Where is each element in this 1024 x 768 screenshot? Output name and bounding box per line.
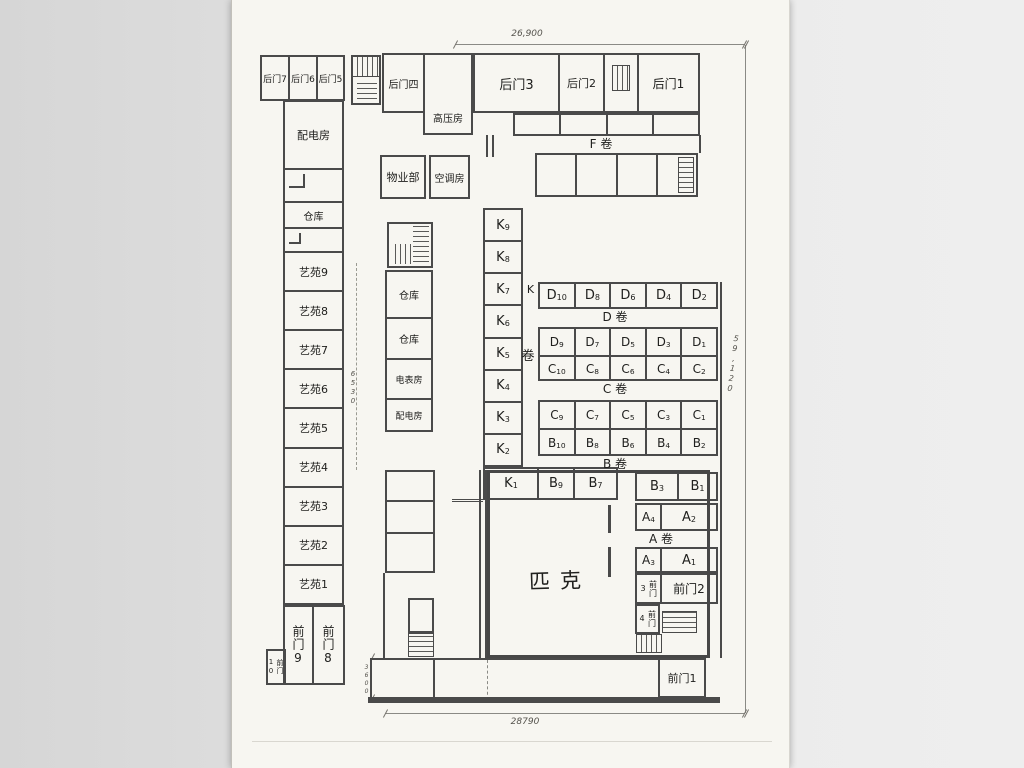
room-frontdoor-9: 前门9 (285, 607, 314, 683)
room-backdoor-4: 后门四 (384, 55, 425, 111)
unit-cell-b10: B10 (540, 430, 576, 456)
room-frontdoor-1: 前门1 (658, 658, 706, 698)
room-peidianfang-2: 配电房 (387, 400, 431, 430)
dimension-top-value: 26,900 (492, 27, 562, 41)
unit-cell-d9: D9 (540, 329, 576, 355)
room-backdoor-2: 后门2 (560, 55, 605, 111)
unit-cell-k7: K7 (485, 274, 521, 306)
unit-cell-c8: C8 (576, 357, 612, 381)
band-dashed-divider (487, 660, 488, 700)
band-stair-cell (605, 55, 639, 111)
service-shaft-block (385, 470, 435, 573)
room-yiyuan-2: 艺苑2 (285, 527, 342, 566)
room-peidianfang: 配电房 (285, 102, 342, 170)
dimension-mid-left-value: 6530 (347, 368, 359, 408)
stairs-icon (408, 633, 434, 657)
unit-cell-d5: D5 (611, 329, 647, 355)
room-kongtiaofang: 空调房 (429, 155, 470, 199)
room-backdoor-1: 后门1 (639, 55, 698, 111)
left-notch-cell (285, 229, 342, 253)
wall-hall-left (479, 470, 487, 658)
unit-cell-k8: K8 (485, 242, 521, 274)
room-backdoor-3: 后门3 (475, 55, 560, 111)
unit-cell-d4: D4 (647, 284, 683, 307)
wall-right-connector (699, 135, 702, 153)
hall-partition-wall (608, 505, 611, 533)
unit-cell-d10: D10 (540, 284, 576, 307)
unit-cell-c5: C5 (611, 402, 647, 428)
dimension-line-top (455, 44, 745, 45)
unit-cell-k6: K6 (485, 306, 521, 338)
room-frontdoor-8: 前门8 (314, 607, 343, 683)
room-gaoyafang: 高压房 (423, 53, 473, 135)
room-yiyuan-3: 艺苑3 (285, 488, 342, 527)
room-cangku-a: 仓库 (387, 272, 431, 319)
frontdoor-block-98: 前门9 前门8 (283, 605, 345, 685)
k-section-juan: 卷 (519, 345, 537, 363)
unit-cell-d1: D1 (682, 329, 716, 355)
room-yiyuan-4: 艺苑4 (285, 449, 342, 488)
unit-cell-k9: K9 (485, 210, 521, 242)
unit-cell-c2: C2 (682, 357, 716, 381)
unit-cell-c9: C9 (540, 402, 576, 428)
cb-double-row: C9 C7 C5 C3 C1 B10 B8 B6 B4 B2 (538, 400, 718, 456)
band-subrow (513, 113, 700, 136)
wall-left-lower (383, 573, 385, 658)
unit-cell-b6: B6 (611, 430, 647, 456)
k-section-letter: K (524, 282, 537, 296)
unit-cell-k2: K2 (485, 435, 521, 465)
f-row (535, 153, 698, 197)
room-wuyebu: 物业部 (380, 155, 426, 199)
wall-right-outer (720, 282, 722, 658)
unit-cell-d3: D3 (647, 329, 683, 355)
stairs-icon (387, 222, 433, 268)
left-wing-column: 配电房 仓库 艺苑9 艺苑8 艺苑7 艺苑6 艺苑5 艺苑4 艺苑3 艺苑2 艺… (283, 100, 344, 605)
backdoor-block-765: 后门7 后门6 后门5 (260, 55, 345, 101)
dc-double-row: D9 D7 D5 D3 D1 C10 C8 C6 C4 C2 (538, 327, 718, 381)
left-corridor-cell (285, 170, 342, 203)
mid-wing-column: 仓库 仓库 电表房 配电房 (385, 270, 433, 432)
dimension-line-right (745, 45, 746, 713)
room-yiyuan-7: 艺苑7 (285, 331, 342, 370)
unit-cell-d6: D6 (611, 284, 647, 307)
d-even-row: D10 D8 D6 D4 D2 (538, 282, 718, 309)
unit-cell-c1: C1 (682, 402, 716, 428)
bottom-band (370, 658, 706, 698)
hall-pike: 匹克 (487, 470, 710, 658)
unit-cell-d7: D7 (576, 329, 612, 355)
unit-cell-k3: K3 (485, 403, 521, 435)
room-dianbiaofang: 电表房 (387, 360, 431, 400)
unit-cell-k5: K5 (485, 339, 521, 371)
stairs-icon (678, 157, 694, 193)
stairs-icon (351, 55, 381, 105)
section-label-c: C 卷 (593, 380, 637, 397)
section-label-f: F 卷 (575, 135, 627, 152)
wall-stub (486, 135, 494, 157)
dimension-bottom-value: 28790 (490, 715, 560, 728)
room-cangku-b: 仓库 (387, 319, 431, 360)
unit-cell-b8: B8 (576, 430, 612, 456)
room-yiyuan-1: 艺苑1 (285, 566, 342, 603)
unit-cell-d8: D8 (576, 284, 612, 307)
unit-cell-b2: B2 (682, 430, 716, 456)
hall-pike-label: 匹克 (520, 564, 601, 597)
dimension-line-mid-left (356, 263, 357, 470)
stairs-icon (612, 65, 630, 91)
room-yiyuan-9: 艺苑9 (285, 253, 342, 292)
unit-cell-c7: C7 (576, 402, 612, 428)
floor-plan-scan: 26,900 59,120 28790 6530 3600 后门7 后门6 后门… (0, 0, 1024, 768)
unit-cell-c10: C10 (540, 357, 576, 381)
dimension-line-bottom (385, 713, 745, 714)
k-column: K9 K8 K7 K6 K5 K4 K3 K2 (483, 208, 523, 467)
room-yiyuan-5: 艺苑5 (285, 409, 342, 448)
room-frontdoor-10: 前门10 (266, 649, 286, 685)
unit-cell-c3: C3 (647, 402, 683, 428)
section-label-d: D 卷 (593, 308, 637, 325)
band-divider (433, 660, 435, 700)
room-backdoor-6: 后门6 (290, 57, 318, 99)
room-backdoor-7: 后门7 (262, 57, 290, 99)
room-yiyuan-6: 艺苑6 (285, 370, 342, 409)
room-cangku: 仓库 (285, 203, 342, 229)
room-yiyuan-8: 艺苑8 (285, 292, 342, 331)
room-backdoor-5: 后门5 (318, 57, 343, 99)
lift-box (408, 598, 434, 633)
paper-fold-line (252, 741, 772, 742)
unit-cell-b4: B4 (647, 430, 683, 456)
unit-cell-c4: C4 (647, 357, 683, 381)
hall-partition-wall (608, 547, 611, 577)
unit-cell-k4: K4 (485, 371, 521, 403)
unit-cell-d2: D2 (682, 284, 716, 307)
unit-cell-c6: C6 (611, 357, 647, 381)
